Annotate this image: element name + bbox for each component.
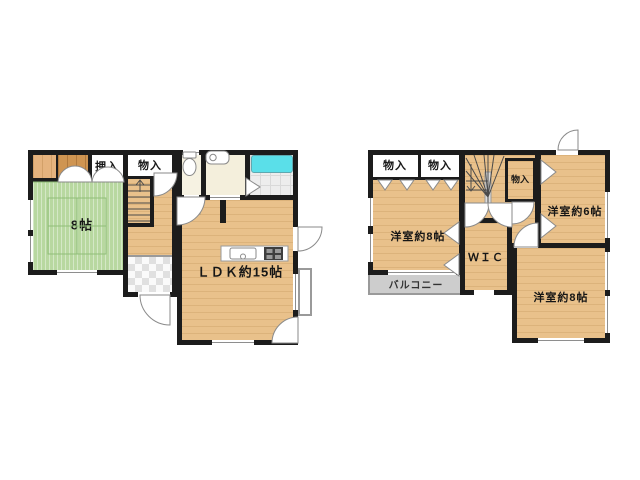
storage-b-label: 物入 [428,157,452,173]
oshiire-label: 押入 [95,158,119,174]
bedroom8-bottom-label: 洋室約8帖 [533,289,588,305]
window [57,270,97,275]
genkan-tile-floor [128,257,172,292]
ldk-door-gap [293,227,298,251]
wall-segment [88,155,92,182]
wall-segment [128,223,154,227]
genkan-step [128,255,172,257]
wall-segment [33,178,58,182]
window [368,234,373,262]
storage-c-label: 物入 [511,173,529,186]
window [28,200,33,230]
bedroom6-label: 洋室約6帖 [547,203,602,219]
window [605,296,610,333]
toilet-door-gap [184,195,199,200]
room-washroom [201,150,250,200]
balcony-label: バルコニー [389,277,444,292]
window [605,252,610,290]
washroom-opening [210,195,240,200]
closet-alcove-light [33,155,56,178]
wall-segment [373,177,459,180]
bay-window [298,268,312,316]
bedroom6-door-gap [556,150,578,155]
bedroom8-bottom-door-gap [514,243,538,248]
ldk-label: ＬＤＫ約15帖 [197,262,283,281]
closet-alcove-dark [58,155,88,178]
window [538,338,584,343]
bedroom8-top-label: 洋室約8帖 [390,228,445,244]
floorplan-canvas: 押入 8帖 物入 ＬＤＫ約15帖 [0,0,640,480]
wall-segment [56,155,58,180]
monoire-1f-label: 物入 [138,157,162,173]
window [212,340,254,345]
wall-segment [150,179,154,225]
tatami-label: 8帖 [71,215,93,234]
room-bedroom6 [536,150,610,248]
window [28,236,33,262]
window [368,198,373,226]
window [183,150,199,155]
wic-label: ＷＩＣ [468,249,504,265]
entrance-door-gap [138,292,170,297]
window [293,274,298,310]
wic-door-gap [474,290,494,295]
window [605,192,610,238]
bathtub [251,155,293,173]
balcony-sliding-door [388,270,456,275]
storage-a-label: 物入 [383,157,407,173]
